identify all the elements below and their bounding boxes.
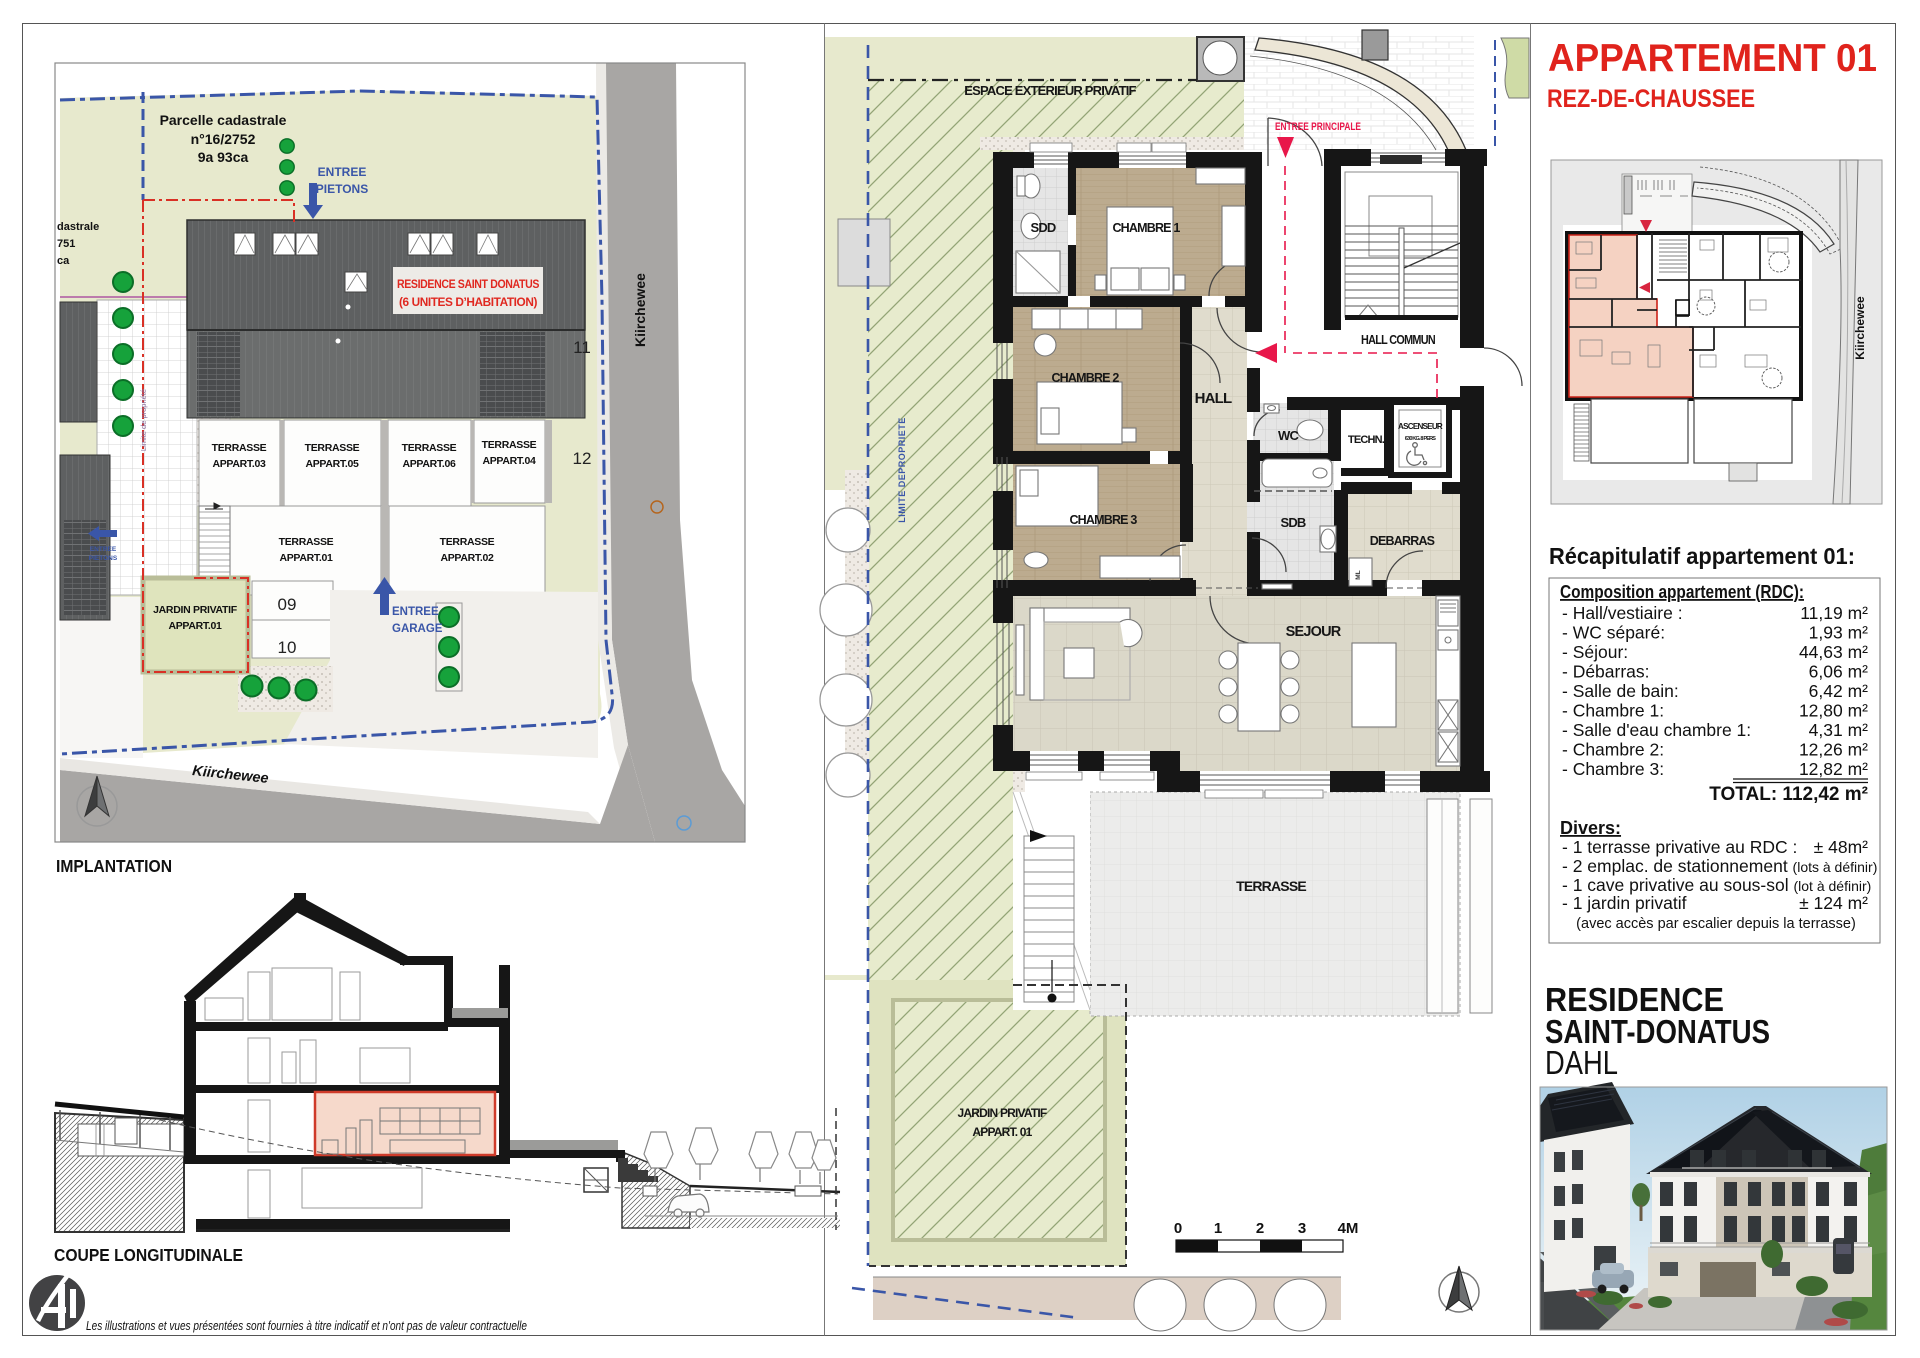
svg-text:4,31 m²: 4,31 m² bbox=[1809, 720, 1868, 740]
svg-text:6,06 m²: 6,06 m² bbox=[1809, 662, 1868, 682]
svg-text:ML: ML bbox=[1355, 570, 1362, 579]
svg-text:LIMITE DEPROPRIETE: LIMITE DEPROPRIETE bbox=[897, 417, 907, 523]
svg-text:APPART.01: APPART.01 bbox=[279, 552, 333, 564]
svg-text:APPART. 01: APPART. 01 bbox=[972, 1125, 1032, 1139]
svg-text:12: 12 bbox=[573, 449, 592, 468]
svg-text:TECHN.: TECHN. bbox=[1348, 434, 1385, 446]
svg-text:- 1 terrasse privative au RDC: - 1 terrasse privative au RDC : bbox=[1562, 837, 1797, 857]
svg-text:ENTREE: ENTREE bbox=[90, 546, 117, 553]
svg-text:WC: WC bbox=[1278, 428, 1299, 443]
svg-text:CHAMBRE 2: CHAMBRE 2 bbox=[1051, 371, 1119, 385]
svg-text:12,82 m²: 12,82 m² bbox=[1799, 759, 1868, 779]
svg-text:ENTREE: ENTREE bbox=[318, 165, 367, 179]
svg-text:Divers:: Divers: bbox=[1560, 818, 1621, 838]
svg-text:Limite de propriété: Limite de propriété bbox=[139, 389, 148, 451]
svg-text:- Chambre 3:: - Chambre 3: bbox=[1562, 759, 1664, 779]
svg-text:± 124 m²: ± 124 m² bbox=[1799, 893, 1868, 913]
svg-text:TERRASSE: TERRASSE bbox=[1236, 878, 1306, 894]
svg-text:ASCENSEUR: ASCENSEUR bbox=[1398, 421, 1443, 431]
svg-text:44,63 m²: 44,63 m² bbox=[1799, 642, 1868, 662]
svg-text:GARAGE: GARAGE bbox=[392, 623, 443, 635]
svg-text:- Hall/vestiaire :: - Hall/vestiaire : bbox=[1562, 603, 1683, 623]
svg-text:HALL: HALL bbox=[1195, 390, 1232, 407]
svg-text:- Salle de bain:: - Salle de bain: bbox=[1562, 681, 1679, 701]
svg-text:11: 11 bbox=[573, 338, 591, 357]
svg-text:APPART.06: APPART.06 bbox=[402, 458, 456, 470]
svg-text:10: 10 bbox=[278, 638, 297, 657]
svg-text:- 1 jardin privatif: - 1 jardin privatif bbox=[1562, 893, 1687, 913]
svg-text:± 48m²: ± 48m² bbox=[1814, 837, 1869, 857]
svg-text:RESIDENCE SAINT DONATUS: RESIDENCE SAINT DONATUS bbox=[397, 279, 540, 291]
svg-text:DEBARRAS: DEBARRAS bbox=[1370, 534, 1435, 548]
svg-text:CHAMBRE 3: CHAMBRE 3 bbox=[1069, 513, 1137, 527]
svg-text:751: 751 bbox=[57, 238, 75, 250]
svg-text:ca: ca bbox=[57, 255, 70, 267]
svg-text:- Chambre 1:: - Chambre 1: bbox=[1562, 701, 1664, 721]
svg-text:APPART.01: APPART.01 bbox=[168, 620, 222, 632]
svg-text:SEJOUR: SEJOUR bbox=[1286, 624, 1342, 640]
svg-text:11,19 m²: 11,19 m² bbox=[1800, 603, 1868, 623]
svg-text:ESPACE EXTERIEUR PRIVATIF: ESPACE EXTERIEUR PRIVATIF bbox=[964, 83, 1136, 98]
svg-text:2: 2 bbox=[1256, 1220, 1264, 1237]
svg-text:- Salle d'eau chambre 1:: - Salle d'eau chambre 1: bbox=[1562, 720, 1751, 740]
svg-text:APPART.02: APPART.02 bbox=[440, 552, 494, 564]
svg-text:TERRASSE: TERRASSE bbox=[440, 536, 495, 548]
svg-text:TERRASSE: TERRASSE bbox=[212, 442, 267, 454]
svg-text:9a 93ca: 9a 93ca bbox=[198, 149, 249, 165]
svg-text:Composition appartement (RDC):: Composition appartement (RDC): bbox=[1560, 582, 1804, 602]
svg-text:12,26 m²: 12,26 m² bbox=[1799, 740, 1868, 760]
svg-text:n°16/2752: n°16/2752 bbox=[191, 131, 256, 147]
svg-text:- Débarras:: - Débarras: bbox=[1562, 662, 1650, 682]
svg-text:APPART.03: APPART.03 bbox=[212, 458, 266, 470]
svg-text:HALL COMMUN: HALL COMMUN bbox=[1361, 333, 1436, 347]
svg-text:JARDIN PRIVATIF: JARDIN PRIVATIF bbox=[153, 604, 238, 616]
svg-text:0: 0 bbox=[1174, 1220, 1182, 1237]
svg-text:(6 UNITES D’HABITATION): (6 UNITES D’HABITATION) bbox=[399, 297, 538, 309]
svg-text:- Séjour:: - Séjour: bbox=[1562, 642, 1628, 662]
svg-text:JARDIN PRIVATIF: JARDIN PRIVATIF bbox=[958, 1106, 1047, 1120]
svg-text:12,80 m²: 12,80 m² bbox=[1799, 701, 1868, 721]
svg-text:Les illustrations et vues prés: Les illustrations et vues présentées son… bbox=[86, 1318, 527, 1333]
svg-text:APPART.04: APPART.04 bbox=[482, 455, 536, 467]
svg-text:TERRASSE: TERRASSE bbox=[279, 536, 334, 548]
svg-text:Kiirchewee: Kiirchewee bbox=[1853, 296, 1867, 360]
svg-text:REZ-DE-CHAUSSEE: REZ-DE-CHAUSSEE bbox=[1547, 85, 1755, 113]
svg-text:DAHL: DAHL bbox=[1545, 1044, 1618, 1081]
svg-text:ENTREE: ENTREE bbox=[392, 606, 439, 618]
svg-text:4M: 4M bbox=[1338, 1220, 1359, 1237]
svg-text:PIETONS: PIETONS bbox=[89, 555, 118, 562]
svg-text:PIETONS: PIETONS bbox=[316, 182, 368, 196]
svg-text:CHAMBRE 1: CHAMBRE 1 bbox=[1112, 221, 1180, 235]
svg-text:TERRASSE: TERRASSE bbox=[402, 442, 457, 454]
svg-text:09: 09 bbox=[278, 595, 297, 614]
svg-text:SDD: SDD bbox=[1030, 220, 1055, 235]
svg-text:TOTAL: 112,42 m²: TOTAL: 112,42 m² bbox=[1709, 784, 1868, 805]
svg-text:TERRASSE: TERRASSE bbox=[305, 442, 360, 454]
svg-text:- 1 cave privative au sous-sol: - 1 cave privative au sous-sol (lot à dé… bbox=[1562, 875, 1871, 895]
svg-text:630 KG. 8 PERS: 630 KG. 8 PERS bbox=[1405, 436, 1437, 442]
svg-text:Parcelle cadastrale: Parcelle cadastrale bbox=[160, 112, 287, 128]
svg-text:Kiirchewee: Kiirchewee bbox=[632, 273, 648, 347]
svg-text:APPARTEMENT 01: APPARTEMENT 01 bbox=[1548, 37, 1877, 80]
svg-text:COUPE LONGITUDINALE: COUPE LONGITUDINALE bbox=[54, 1245, 243, 1265]
svg-text:Récapitulatif appartement 01:: Récapitulatif appartement 01: bbox=[1549, 543, 1855, 569]
svg-text:1: 1 bbox=[1214, 1220, 1222, 1237]
svg-text:- Chambre 2:: - Chambre 2: bbox=[1562, 740, 1664, 760]
svg-text:TERRASSE: TERRASSE bbox=[482, 439, 537, 451]
svg-text:ENTREE PRINCIPALE: ENTREE PRINCIPALE bbox=[1275, 121, 1361, 133]
svg-text:IMPLANTATION: IMPLANTATION bbox=[56, 856, 172, 876]
svg-text:dastrale: dastrale bbox=[57, 221, 99, 233]
svg-text:- 2 emplac. de stationnement (: - 2 emplac. de stationnement (lots à déf… bbox=[1562, 856, 1877, 876]
svg-text:- WC séparé:: - WC séparé: bbox=[1562, 623, 1665, 643]
svg-text:APPART.05: APPART.05 bbox=[305, 458, 359, 470]
svg-text:(avec accès par escalier depui: (avec accès par escalier depuis la terra… bbox=[1576, 916, 1856, 932]
svg-text:6,42 m²: 6,42 m² bbox=[1809, 681, 1868, 701]
svg-text:SDB: SDB bbox=[1280, 515, 1305, 530]
svg-text:3: 3 bbox=[1298, 1220, 1306, 1237]
svg-text:1,93 m²: 1,93 m² bbox=[1809, 623, 1868, 643]
